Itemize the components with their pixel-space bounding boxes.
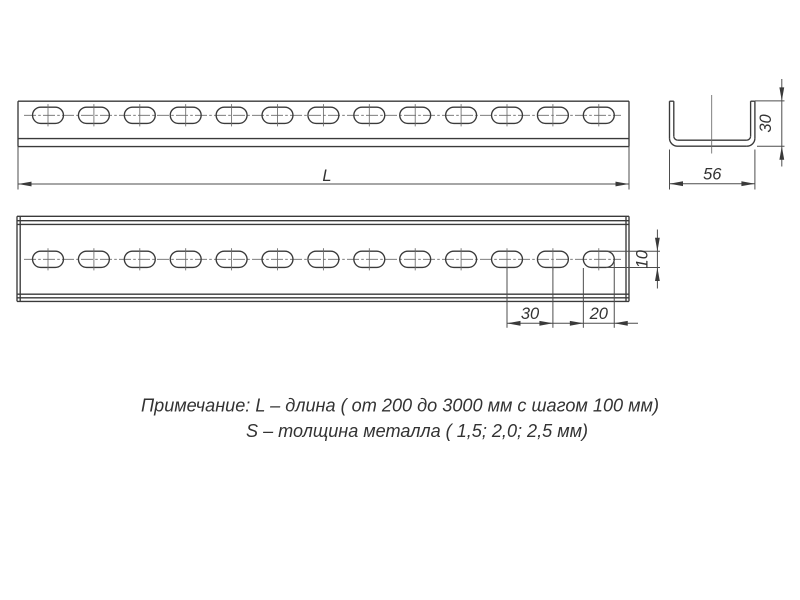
svg-text:56: 56 xyxy=(703,166,722,184)
svg-text:20: 20 xyxy=(589,305,609,323)
svg-text:L: L xyxy=(322,167,331,185)
svg-text:S – толщина металла ( 1,5; 2,0: S – толщина металла ( 1,5; 2,0; 2,5 мм) xyxy=(246,421,588,441)
svg-text:10: 10 xyxy=(634,249,652,268)
svg-text:30: 30 xyxy=(757,114,775,133)
svg-text:Примечание: L – длина ( от 200: Примечание: L – длина ( от 200 до 3000 м… xyxy=(141,396,659,416)
svg-text:30: 30 xyxy=(521,305,540,323)
